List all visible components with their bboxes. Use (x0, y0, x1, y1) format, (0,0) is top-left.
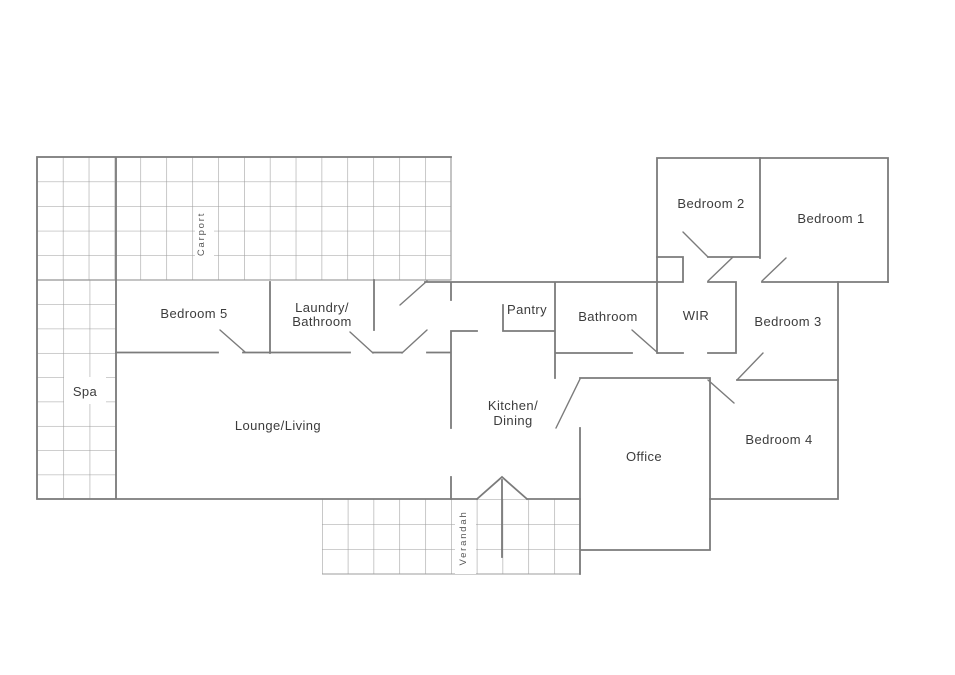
room-label-laundry-line2: Bathroom (292, 314, 352, 329)
room-label-lounge-living: Lounge/Living (235, 418, 321, 433)
room-label-wir: WIR (683, 308, 709, 323)
room-label-verandah: Verandah (458, 510, 469, 565)
room-label-bedroom-3: Bedroom 3 (754, 314, 821, 329)
room-label-spa: Spa (73, 384, 98, 399)
room-label-bedroom-4: Bedroom 4 (745, 432, 812, 447)
verandah-grid (322, 499, 580, 574)
room-label-bedroom-2: Bedroom 2 (677, 196, 744, 211)
room-label-bedroom-5: Bedroom 5 (160, 306, 227, 321)
floor-plan-drawing: Bedroom 2 Bedroom 1 Bedroom 5 Laundry/ B… (0, 0, 955, 675)
room-label-office: Office (626, 449, 662, 464)
floor-plan-page: Bedroom 2 Bedroom 1 Bedroom 5 Laundry/ B… (0, 0, 955, 675)
room-label-kitchen-line2: Dining (493, 413, 532, 428)
room-label-carport: Carport (196, 212, 207, 256)
room-label-bedroom-1: Bedroom 1 (797, 211, 864, 226)
room-label-kitchen-line1: Kitchen/ (488, 398, 538, 413)
room-label-bathroom: Bathroom (578, 309, 638, 324)
room-label-pantry: Pantry (507, 302, 547, 317)
room-label-laundry-line1: Laundry/ (295, 300, 349, 315)
carport-grid (37, 157, 451, 280)
